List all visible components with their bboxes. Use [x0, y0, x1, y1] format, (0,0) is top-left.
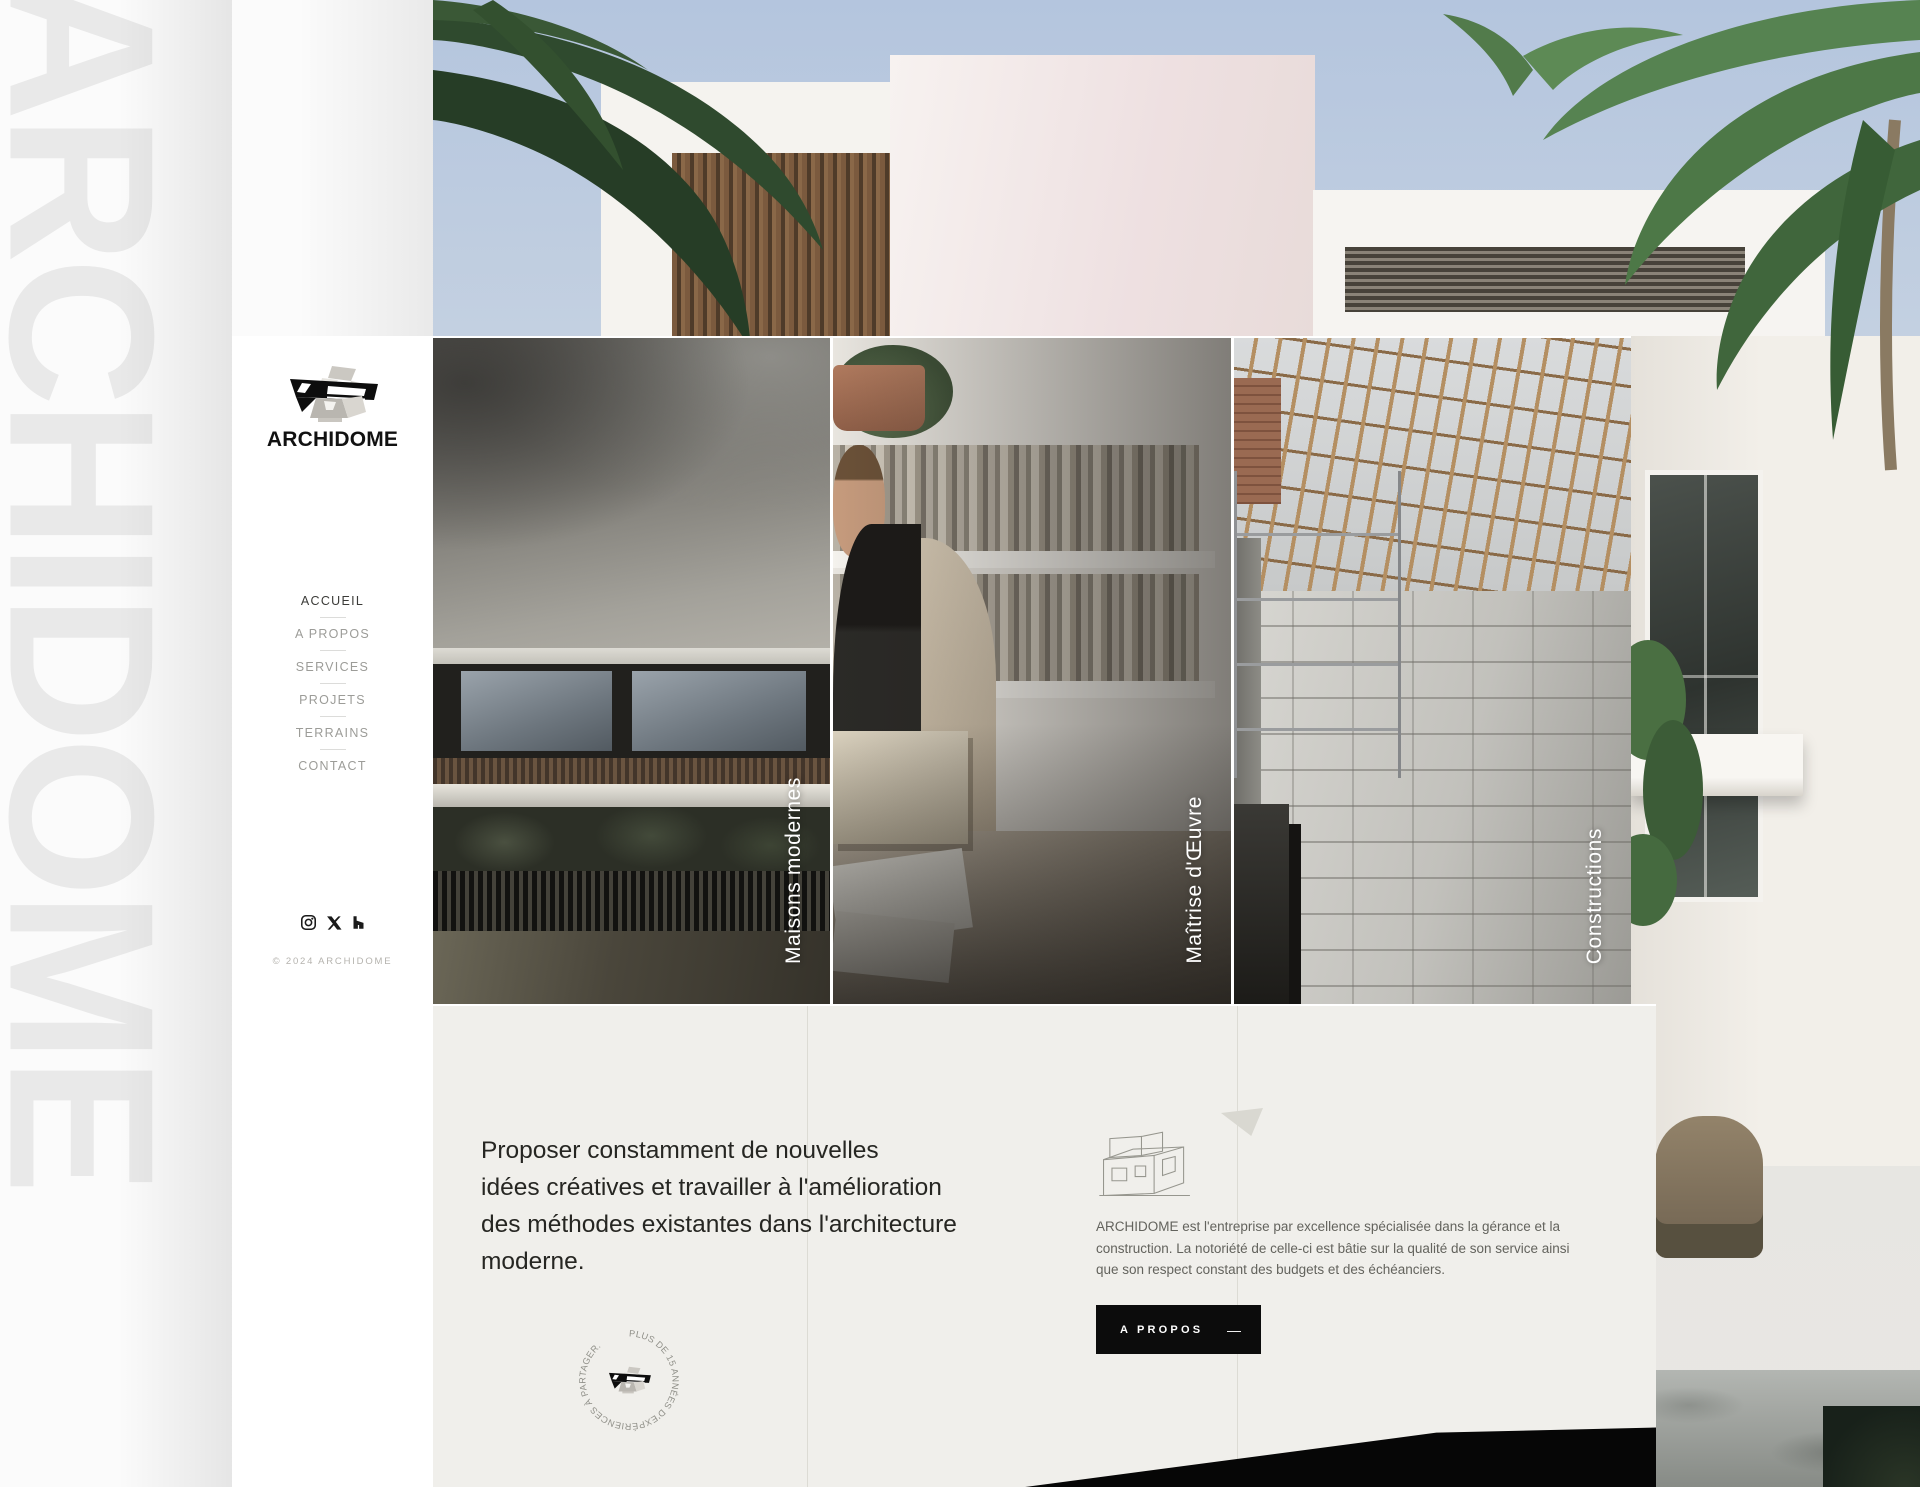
photo-building-mid [890, 55, 1315, 336]
card-constructions[interactable]: Constructions [1234, 338, 1631, 1004]
nav-separator [320, 716, 346, 717]
card1-windows [433, 664, 830, 757]
nav-separator [320, 650, 346, 651]
photo-bush [1823, 1406, 1920, 1487]
card3-window-opening [1234, 804, 1290, 1004]
photo-balcony [1631, 734, 1803, 796]
left-edge-shadow [118, 0, 232, 1487]
houzz-icon[interactable] [351, 915, 366, 930]
button-dash-icon: — [1227, 1322, 1241, 1338]
card1-window-pane [632, 671, 807, 751]
a-propos-button[interactable]: A PROPOS — [1096, 1305, 1261, 1354]
statement-line: des méthodes existantes dans l'architect… [481, 1206, 957, 1243]
card1-roof-slab [433, 648, 830, 665]
card2-right-shade [833, 338, 1230, 1004]
about-section: Proposer constamment de nouvelles idées … [433, 1004, 1656, 1487]
service-cards: Maisons modernes Maîtrise d'Œuvre Constr… [433, 336, 1631, 1004]
card-label-maisons-modernes: Maisons modernes [782, 777, 806, 964]
card-label-maitrise-doeuvre: Maîtrise d'Œuvre [1183, 796, 1207, 964]
about-description: ARCHIDOME est l'entreprise par excellenc… [1096, 1216, 1594, 1281]
statement-line: idées créatives et travailler à l'amélio… [481, 1169, 957, 1206]
card1-ground [433, 931, 830, 1004]
a-propos-button-label: A PROPOS [1120, 1324, 1203, 1336]
nav-item-accueil[interactable]: ACCUEIL [232, 594, 433, 608]
x-icon[interactable] [326, 915, 342, 931]
card1-hedge [433, 807, 830, 871]
photo-wood-slat-panel [672, 153, 893, 336]
mission-statement: Proposer constamment de nouvelles idées … [481, 1132, 957, 1280]
nav-separator [320, 617, 346, 618]
nav-item-contact[interactable]: CONTACT [232, 759, 433, 773]
card1-window-pane [461, 671, 612, 751]
statement-line: moderne. [481, 1243, 957, 1280]
instagram-icon[interactable] [300, 914, 317, 931]
archidome-logo-icon[interactable] [280, 366, 384, 424]
card1-concrete-beam [433, 784, 830, 807]
nav-item-terrains[interactable]: TERRAINS [232, 726, 433, 740]
card-maisons-modernes[interactable]: Maisons modernes [433, 338, 830, 1004]
nav-item-a-propos[interactable]: A PROPOS [232, 627, 433, 641]
photo-louver-window [1345, 247, 1745, 312]
social-links [232, 914, 433, 931]
card1-slat-fence [433, 871, 830, 931]
card1-wood-band [433, 758, 830, 785]
nav-separator [320, 749, 346, 750]
nav-item-projets[interactable]: PROJETS [232, 693, 433, 707]
decorative-black-wedge [1010, 1425, 1656, 1487]
building-sketch-illustration [1093, 1128, 1211, 1204]
photo-tall-window [1645, 470, 1763, 902]
archidome-landing-page: { "brand": { "name": "ARCHIDOME", "water… [0, 0, 1920, 1487]
experience-stamp: PLUS DE 15 ANNÉES D'EXPÉRIENCES À PARTAG… [571, 1322, 687, 1438]
flag-marker [1221, 1108, 1263, 1136]
card-maitrise-doeuvre[interactable]: Maîtrise d'Œuvre [833, 338, 1230, 1004]
nav-separator [320, 683, 346, 684]
card3-scaffolding [1234, 471, 1401, 777]
statement-line: Proposer constamment de nouvelles [481, 1132, 957, 1169]
copyright-text: © 2024 ARCHIDOME [232, 956, 433, 967]
brand-wordmark[interactable]: ARCHIDOME [232, 428, 433, 452]
card1-cloudy-sky [433, 338, 830, 658]
main-navigation: ACCUEIL A PROPOS SERVICES PROJETS TERRAI… [232, 594, 433, 782]
top-edge-shadow [298, 0, 433, 336]
card-label-constructions: Constructions [1583, 828, 1607, 964]
nav-item-services[interactable]: SERVICES [232, 660, 433, 674]
sidebar: ARCHIDOME ACCUEIL A PROPOS SERVICES PROJ… [232, 336, 433, 1004]
